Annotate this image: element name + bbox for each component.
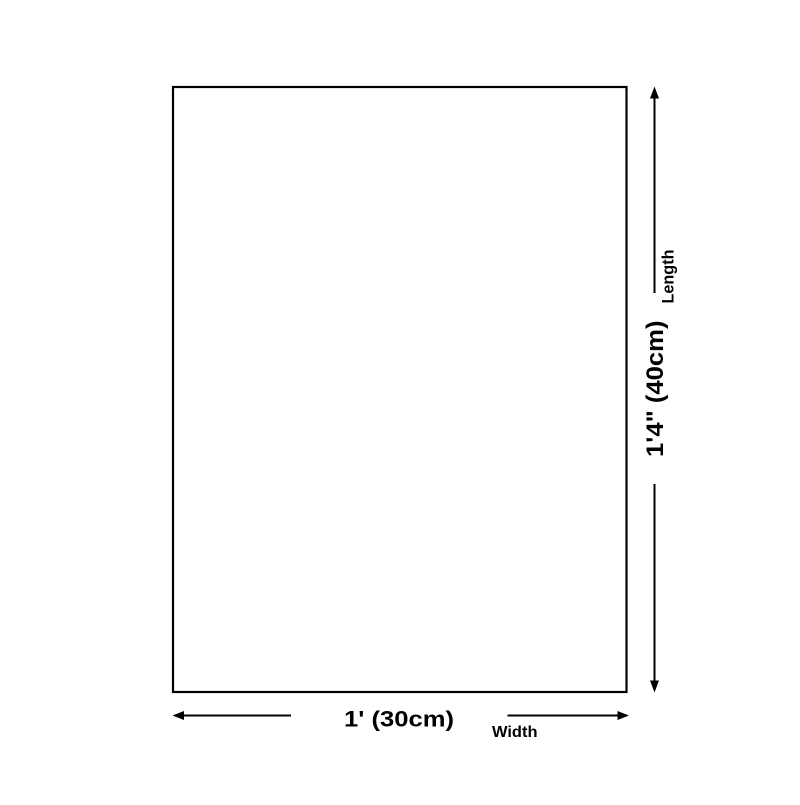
svg-text:Length: Length [660,250,678,304]
svg-text:1' (30cm): 1' (30cm) [344,707,454,732]
svg-text:Width: Width [492,724,538,741]
svg-text:1'4" (40cm): 1'4" (40cm) [642,321,669,458]
